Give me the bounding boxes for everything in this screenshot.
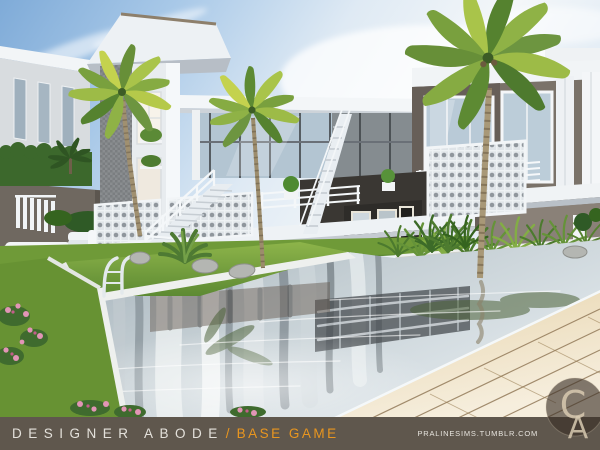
caption-bar: DESIGNER ABODE/BASE GAME PRALINESIMS.TUM… [0, 417, 600, 450]
logo-letter-a: A [568, 411, 589, 446]
build-title: DESIGNER ABODE/BASE GAME [12, 426, 339, 441]
house-render-scene [0, 0, 600, 418]
build-title-main: DESIGNER ABODE [12, 426, 224, 441]
creator-logo-watermark: C A [543, 370, 600, 450]
screenshot-stage: DESIGNER ABODE/BASE GAME PRALINESIMS.TUM… [0, 0, 600, 450]
title-separator: / [226, 426, 232, 441]
hedge-bush [44, 210, 72, 226]
build-title-accent: BASE GAME [237, 426, 339, 441]
glass-pavilion [180, 95, 428, 180]
creator-url: PRALINESIMS.TUMBLR.COM [417, 429, 538, 438]
